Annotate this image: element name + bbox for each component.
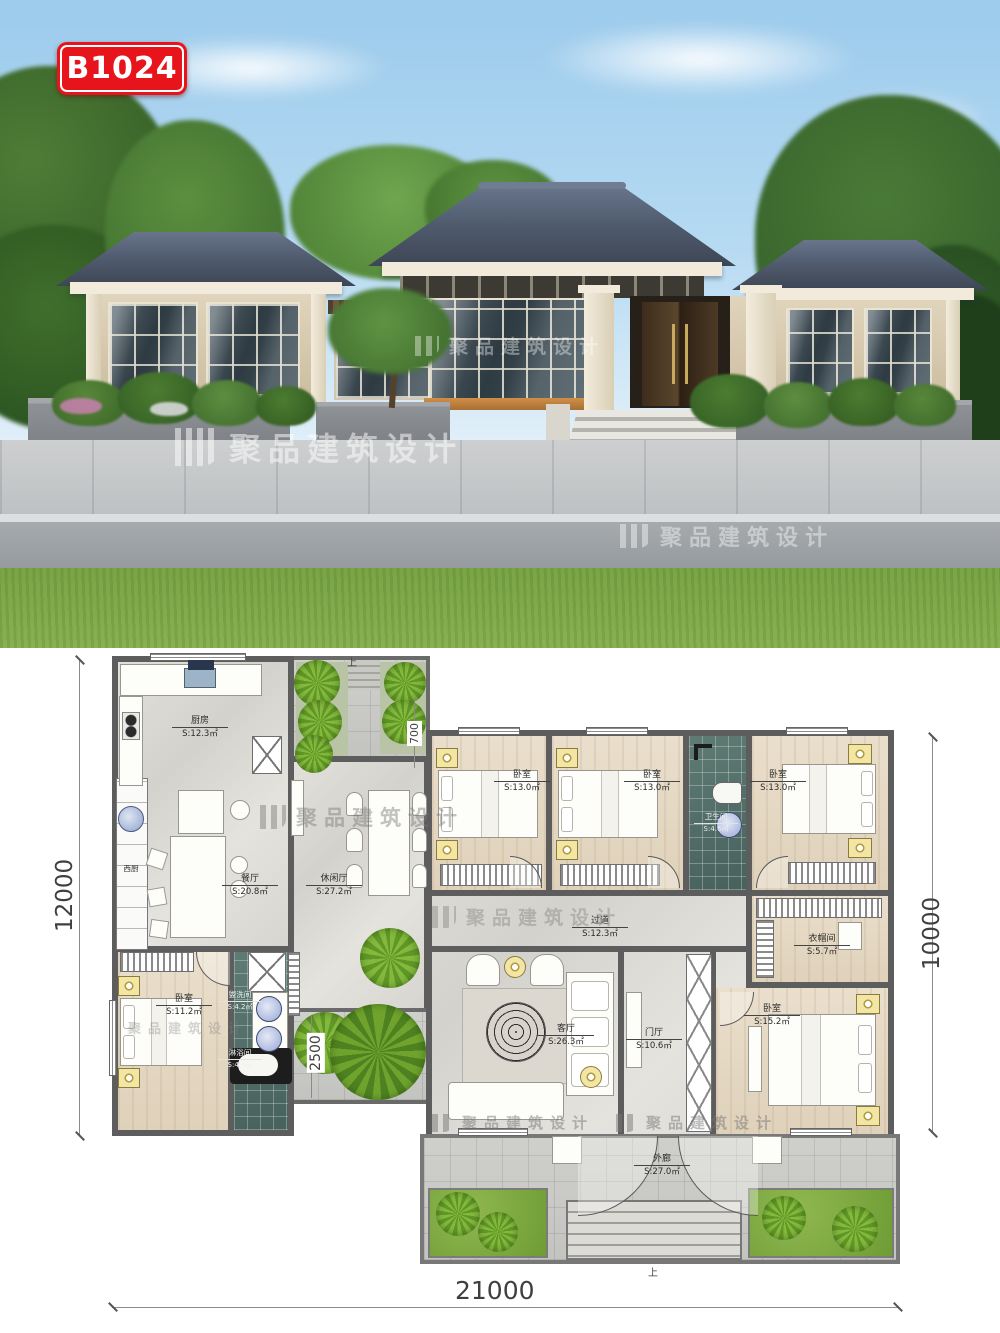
shower-arm bbox=[694, 744, 698, 760]
room-name: 卫生间 bbox=[705, 812, 728, 821]
kitchen-island bbox=[178, 790, 224, 834]
bush bbox=[118, 372, 202, 424]
watermark-text: 聚品建筑设计 bbox=[660, 520, 834, 552]
round-lamp-table bbox=[580, 1066, 602, 1088]
plan-window bbox=[586, 727, 648, 735]
pillow bbox=[858, 1025, 872, 1055]
brand-logo-icon bbox=[620, 524, 650, 548]
wardrobe bbox=[756, 920, 774, 978]
dim-right: 10000 bbox=[919, 900, 945, 970]
room-name: 餐厅 bbox=[241, 874, 259, 885]
lawn bbox=[0, 568, 1000, 648]
room-label-dining: 餐厅S:20.8㎡ bbox=[212, 866, 288, 897]
watermark: 聚品建筑设计 bbox=[616, 1112, 778, 1133]
flue-shaft bbox=[252, 736, 282, 774]
left-wing-fascia bbox=[70, 282, 342, 294]
roof-ridge bbox=[478, 182, 626, 189]
bush bbox=[192, 380, 262, 426]
brand-logo-icon bbox=[616, 1114, 636, 1132]
brand-logo-icon bbox=[260, 805, 286, 829]
room-area: S:13.0㎡ bbox=[750, 781, 806, 793]
watermark-text: 聚品建筑设计 bbox=[449, 332, 605, 359]
plan-tree bbox=[360, 928, 420, 988]
wardrobe bbox=[756, 898, 882, 918]
room-area: S:20.8㎡ bbox=[222, 885, 278, 897]
pillow bbox=[561, 776, 573, 801]
armchair bbox=[530, 954, 564, 986]
room-label-porch: 外廊S:27.0㎡ bbox=[624, 1146, 700, 1177]
watermark: 聚品建筑设计 bbox=[432, 903, 622, 930]
room-label-foyer: 门厅S:10.6㎡ bbox=[616, 1020, 692, 1051]
watermark: 聚品建筑设计 bbox=[432, 1112, 594, 1133]
brand-logo-icon bbox=[415, 336, 439, 356]
brand-logo-icon bbox=[175, 428, 219, 466]
wall bbox=[546, 730, 552, 896]
dim-bottom: 21000 bbox=[455, 1276, 535, 1305]
dining-chair bbox=[147, 887, 168, 908]
room-label-kitchen: 厨房S:12.3㎡ bbox=[162, 708, 238, 739]
dim-value: 700 bbox=[408, 723, 421, 744]
plan-tree bbox=[295, 735, 333, 773]
tree bbox=[328, 288, 452, 374]
watermark-text: 聚品建筑设计 bbox=[229, 424, 463, 470]
watermark: 聚品建筑设计 bbox=[415, 332, 605, 359]
walkway bbox=[0, 440, 1000, 514]
room-name: 外廊 bbox=[653, 1154, 671, 1165]
dim-line-left bbox=[79, 660, 80, 1136]
dim-tick bbox=[928, 1128, 938, 1138]
bush bbox=[894, 384, 956, 426]
room-area: S:12.3㎡ bbox=[172, 727, 228, 739]
dim-tick bbox=[928, 732, 938, 742]
room-area: S:13.0㎡ bbox=[624, 781, 680, 793]
pilaster bbox=[946, 300, 960, 402]
clerestory-band bbox=[400, 276, 704, 298]
dim-value: 21000 bbox=[455, 1276, 535, 1305]
pillow bbox=[441, 776, 453, 801]
pilaster bbox=[311, 294, 326, 402]
dim-value: 2500 bbox=[308, 1035, 324, 1071]
watermark-text: 聚品建筑设计 bbox=[462, 1112, 594, 1133]
dim-tick bbox=[75, 1131, 85, 1141]
watermark-text: 聚品建筑设计 bbox=[128, 1018, 248, 1037]
floor-vent bbox=[788, 862, 876, 884]
floor-vent bbox=[560, 864, 660, 886]
plan-tree bbox=[832, 1206, 878, 1252]
chair bbox=[412, 864, 427, 888]
center-fascia bbox=[382, 262, 722, 276]
dining-chair bbox=[149, 919, 169, 939]
room-label-living: 客厅S:26.3㎡ bbox=[528, 1016, 604, 1047]
stove-icon bbox=[122, 712, 140, 740]
nightstand bbox=[556, 840, 578, 860]
round-stool bbox=[230, 800, 250, 820]
room-label-bedroom2: 卧室S:13.0㎡ bbox=[614, 762, 690, 793]
stair-up-label-top: 上 bbox=[347, 654, 357, 669]
wall bbox=[746, 890, 752, 988]
bush bbox=[690, 374, 770, 428]
pillow bbox=[561, 807, 573, 832]
dim-value: 10000 bbox=[919, 897, 945, 970]
column-capital bbox=[578, 285, 620, 293]
range-hood bbox=[188, 660, 214, 670]
room-area: S:4.0㎡ bbox=[218, 1059, 262, 1069]
nightstand bbox=[436, 840, 458, 860]
flowers bbox=[60, 398, 102, 414]
nightstand bbox=[848, 744, 872, 764]
kitchen-counter bbox=[119, 696, 143, 786]
door-handle bbox=[672, 324, 675, 384]
room-area: S:13.0㎡ bbox=[494, 781, 550, 793]
wall bbox=[426, 946, 748, 952]
room-label-bath: 卫生间S:4.6㎡ bbox=[678, 804, 754, 834]
plan-tree bbox=[436, 1192, 480, 1236]
nightstand bbox=[118, 1068, 140, 1088]
room-area: S:27.2㎡ bbox=[306, 885, 362, 897]
room-label-leisure: 休闲厅S:27.2㎡ bbox=[296, 866, 372, 897]
watermark: 聚品建筑设计 bbox=[128, 1018, 248, 1037]
plan-window bbox=[790, 1128, 852, 1136]
watermark-text: 聚品建筑设计 bbox=[646, 1112, 778, 1133]
drying-rack bbox=[288, 952, 300, 1016]
room-label-bedroom3: 卧室S:13.0㎡ bbox=[740, 762, 816, 793]
room-name: 客厅 bbox=[557, 1024, 575, 1035]
dim-700: 700 bbox=[407, 721, 422, 746]
road bbox=[0, 522, 1000, 574]
plan-window bbox=[786, 727, 848, 735]
room-name: 卧室 bbox=[763, 1004, 781, 1015]
nightstand bbox=[848, 838, 872, 858]
room-name: 淋浴间 bbox=[229, 1048, 252, 1057]
room-area: S:5.7㎡ bbox=[794, 945, 850, 957]
dim-2500: 2500 bbox=[307, 1033, 325, 1073]
design-sheet: 聚品建筑设计 聚品建筑设计 聚品建筑设计 B1024 上 700 bbox=[0, 0, 1000, 1333]
bush bbox=[764, 382, 832, 428]
room-name: 卧室 bbox=[175, 994, 193, 1005]
plan-tree bbox=[762, 1196, 806, 1240]
brand-logo-icon bbox=[432, 906, 456, 928]
room-label-shower: 淋浴间S:4.0㎡ bbox=[202, 1040, 278, 1070]
room-area: S:4.6㎡ bbox=[694, 823, 738, 833]
room-label-bedroom1: 卧室S:13.0㎡ bbox=[484, 762, 560, 793]
wall bbox=[426, 890, 888, 896]
stair-up-label-bottom: 上 bbox=[648, 1264, 658, 1279]
room-label-west-kitchen: 西厨 bbox=[93, 856, 169, 875]
dim-tick bbox=[75, 655, 85, 665]
bush bbox=[828, 378, 900, 426]
pillow bbox=[858, 1063, 872, 1093]
brand-logo-icon bbox=[432, 1114, 452, 1132]
dim-line-bottom bbox=[112, 1307, 898, 1308]
watermark-text: 聚品建筑设计 bbox=[466, 903, 622, 930]
door-handle bbox=[685, 324, 688, 384]
plan-tree-large bbox=[330, 1004, 426, 1100]
dim-left: 12000 bbox=[52, 862, 78, 932]
room-name: 卧室 bbox=[513, 770, 531, 781]
bed bbox=[768, 1014, 876, 1106]
room-area: S:4.2㎡ bbox=[218, 1001, 262, 1011]
room-area: S:15.2㎡ bbox=[744, 1015, 800, 1027]
plan-tree bbox=[478, 1212, 518, 1252]
render-photo: 聚品建筑设计 聚品建筑设计 聚品建筑设计 B1024 bbox=[0, 0, 1000, 648]
room-name: 厨房 bbox=[191, 716, 209, 727]
nightstand bbox=[436, 748, 458, 768]
room-label-master: 卧室S:15.2㎡ bbox=[734, 996, 810, 1027]
nightstand bbox=[856, 994, 880, 1014]
plan-tree bbox=[384, 662, 426, 704]
room-name: 西厨 bbox=[124, 864, 139, 873]
nightstand bbox=[118, 976, 140, 996]
room-name: 休闲厅 bbox=[320, 874, 347, 885]
room-name: 衣帽间 bbox=[808, 934, 835, 945]
room-name: 卧室 bbox=[643, 770, 661, 781]
watermark: 聚品建筑设计 bbox=[620, 520, 834, 552]
pillow bbox=[123, 1035, 135, 1059]
badge-code: B1024 bbox=[66, 51, 177, 86]
plan-window bbox=[458, 727, 520, 735]
cloud bbox=[540, 22, 860, 96]
cushion bbox=[571, 981, 609, 1011]
pillow bbox=[861, 802, 873, 827]
room-label-washroom: 盥洗间S:4.2㎡ bbox=[202, 982, 278, 1012]
curb bbox=[0, 514, 1000, 522]
bench bbox=[748, 1026, 762, 1092]
west-kitchen-sink bbox=[118, 806, 144, 832]
dim-value: 12000 bbox=[52, 859, 78, 932]
room-label-closet: 衣帽间S:5.7㎡ bbox=[784, 926, 860, 957]
room-area: S:10.6㎡ bbox=[626, 1039, 682, 1051]
watermark-text: 聚品建筑设计 bbox=[296, 802, 464, 832]
room-area: S:26.3㎡ bbox=[538, 1035, 594, 1047]
room-area: S:27.0㎡ bbox=[634, 1165, 690, 1177]
kitchen-sink bbox=[184, 668, 216, 688]
design-code-badge: B1024 bbox=[57, 42, 187, 95]
toilet bbox=[712, 782, 742, 804]
bed-runner bbox=[801, 1015, 821, 1105]
plan-window bbox=[109, 1000, 117, 1076]
round-lamp-table bbox=[504, 956, 526, 978]
room-name: 门厅 bbox=[645, 1028, 663, 1039]
nightstand bbox=[856, 1106, 880, 1126]
column-capital bbox=[740, 285, 782, 293]
watermark: 聚品建筑设计 bbox=[175, 424, 463, 470]
room-name: 盥洗间 bbox=[229, 990, 252, 999]
wardrobe bbox=[120, 952, 194, 972]
armchair bbox=[466, 954, 500, 986]
room-name: 卧室 bbox=[769, 770, 787, 781]
pillow bbox=[861, 771, 873, 796]
bush bbox=[256, 386, 316, 426]
wall bbox=[752, 982, 888, 988]
watermark: 聚品建筑设计 bbox=[260, 802, 464, 832]
flowers bbox=[150, 402, 188, 416]
